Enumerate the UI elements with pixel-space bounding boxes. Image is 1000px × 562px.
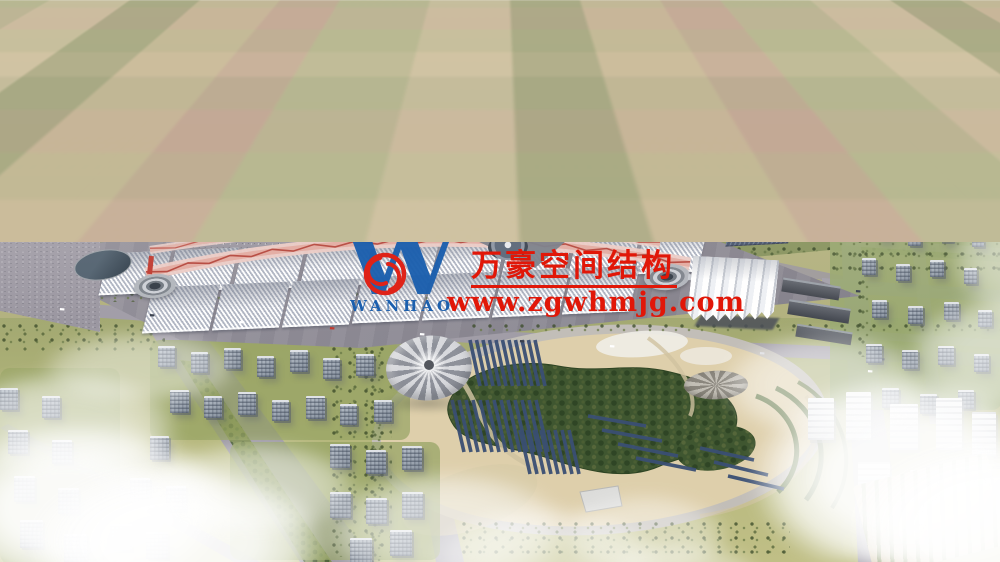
car	[240, 321, 245, 324]
aerial-rendering-expo-city: 万豪空间结构 www.zgwhmjg.com WANHAO W	[0, 0, 1000, 562]
city-building	[872, 300, 887, 318]
car	[150, 314, 155, 317]
city-building	[982, 170, 992, 183]
city-building	[374, 400, 392, 422]
city-building	[238, 392, 256, 415]
car	[856, 290, 861, 293]
city-building	[257, 356, 274, 377]
city-building	[896, 264, 910, 281]
city-building	[356, 354, 374, 376]
city-building	[950, 176, 961, 190]
car	[610, 345, 615, 348]
city-building	[272, 400, 289, 421]
car	[520, 340, 525, 343]
cloud	[720, 330, 930, 430]
city-building	[926, 162, 936, 175]
cloud	[950, 195, 1000, 315]
watermark-url: www.zgwhmjg.com	[447, 289, 745, 316]
city-building	[886, 174, 897, 188]
city-building	[896, 156, 906, 169]
city-building	[928, 196, 940, 211]
city-building	[323, 358, 340, 379]
city-building	[862, 258, 876, 275]
car	[60, 308, 65, 311]
city-building	[876, 224, 889, 240]
city-building	[908, 230, 921, 246]
cloud	[0, 0, 220, 40]
city-building	[402, 446, 422, 470]
wanhao-w-logo: W	[336, 232, 466, 310]
car	[330, 327, 335, 330]
car	[848, 220, 853, 223]
city-building	[868, 196, 880, 211]
dome-pole	[424, 360, 434, 370]
city-building	[898, 202, 910, 217]
city-building	[290, 350, 308, 372]
cloud	[850, 440, 1000, 562]
city-building	[958, 156, 968, 169]
logo-letter: W	[344, 232, 459, 310]
city-building	[340, 404, 357, 425]
city-building	[306, 396, 325, 419]
city-building	[930, 260, 944, 277]
cloud	[870, 0, 1000, 70]
cloud	[40, 330, 240, 400]
cloud	[600, 540, 760, 562]
watermark-brand-chinese: 万豪空间结构	[471, 251, 677, 288]
